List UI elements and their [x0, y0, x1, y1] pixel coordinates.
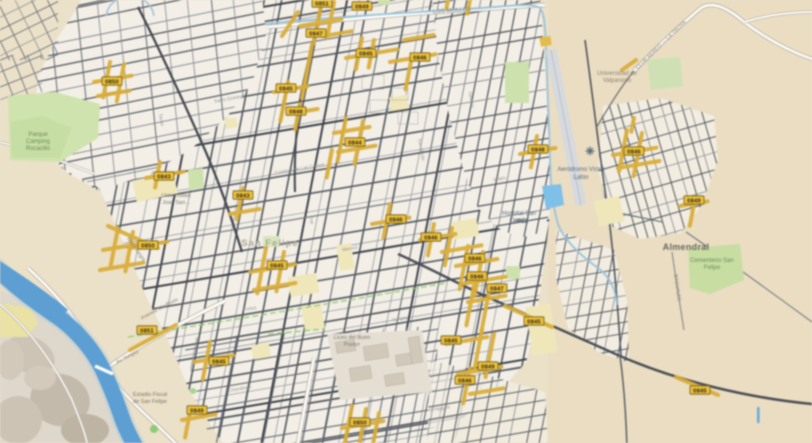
svg-text:Aeródromo Víctor: Aeródromo Víctor [557, 167, 604, 173]
svg-text:0849: 0849 [481, 364, 495, 370]
svg-text:Universidad de: Universidad de [597, 71, 638, 77]
svg-text:Hospital San: Hospital San [502, 211, 536, 217]
svg-text:0844: 0844 [348, 140, 362, 146]
svg-text:Camping: Camping [26, 139, 50, 145]
svg-text:0845: 0845 [270, 263, 284, 269]
svg-text:Liceo del Buen: Liceo del Buen [334, 335, 370, 341]
svg-text:Universidad: Universidad [161, 193, 190, 199]
svg-text:0843: 0843 [157, 174, 171, 180]
svg-text:0846: 0846 [458, 378, 472, 384]
svg-text:Almendral: Almendral [663, 242, 710, 252]
svg-text:0845: 0845 [359, 51, 373, 57]
svg-text:0845: 0845 [279, 86, 293, 92]
svg-text:Lafón: Lafón [573, 175, 588, 181]
svg-text:0846: 0846 [470, 274, 484, 280]
svg-text:Felipe: Felipe [704, 265, 721, 271]
svg-text:0843: 0843 [236, 193, 250, 199]
svg-text:0846: 0846 [627, 149, 641, 155]
svg-text:0848: 0848 [531, 147, 545, 153]
svg-text:José San...: José San... [162, 200, 190, 206]
svg-text:Cementerio San: Cementerio San [690, 258, 733, 264]
svg-text:0846: 0846 [424, 235, 438, 241]
svg-text:Pastor: Pastor [344, 342, 360, 348]
svg-text:0851: 0851 [315, 1, 329, 7]
svg-text:Rocacillo: Rocacillo [26, 146, 51, 152]
svg-text:0850: 0850 [141, 243, 155, 249]
svg-text:0848: 0848 [289, 109, 303, 115]
svg-text:0846: 0846 [413, 55, 427, 61]
svg-text:Camilo: Camilo [510, 218, 529, 224]
svg-text:0850: 0850 [105, 79, 119, 85]
svg-text:0850: 0850 [353, 420, 367, 426]
svg-text:Parque: Parque [28, 132, 48, 138]
svg-text:0846: 0846 [389, 217, 403, 223]
svg-text:Estadio Fiscal: Estadio Fiscal [133, 392, 167, 398]
svg-text:0849: 0849 [355, 4, 369, 10]
svg-text:San Felipe: San Felipe [241, 238, 299, 249]
svg-text:0846: 0846 [468, 256, 482, 262]
svg-text:0849: 0849 [190, 408, 204, 414]
svg-text:0847: 0847 [309, 31, 323, 37]
svg-text:de San Felipe: de San Felipe [133, 399, 167, 405]
svg-text:0847: 0847 [490, 286, 504, 292]
svg-text:0845: 0845 [444, 338, 458, 344]
svg-text:0851: 0851 [140, 328, 154, 334]
svg-text:0849: 0849 [687, 198, 701, 204]
svg-text:0845: 0845 [527, 319, 541, 325]
svg-text:Valparaíso: Valparaíso [603, 78, 632, 84]
svg-text:0845: 0845 [212, 359, 226, 365]
svg-text:0845: 0845 [693, 388, 707, 394]
